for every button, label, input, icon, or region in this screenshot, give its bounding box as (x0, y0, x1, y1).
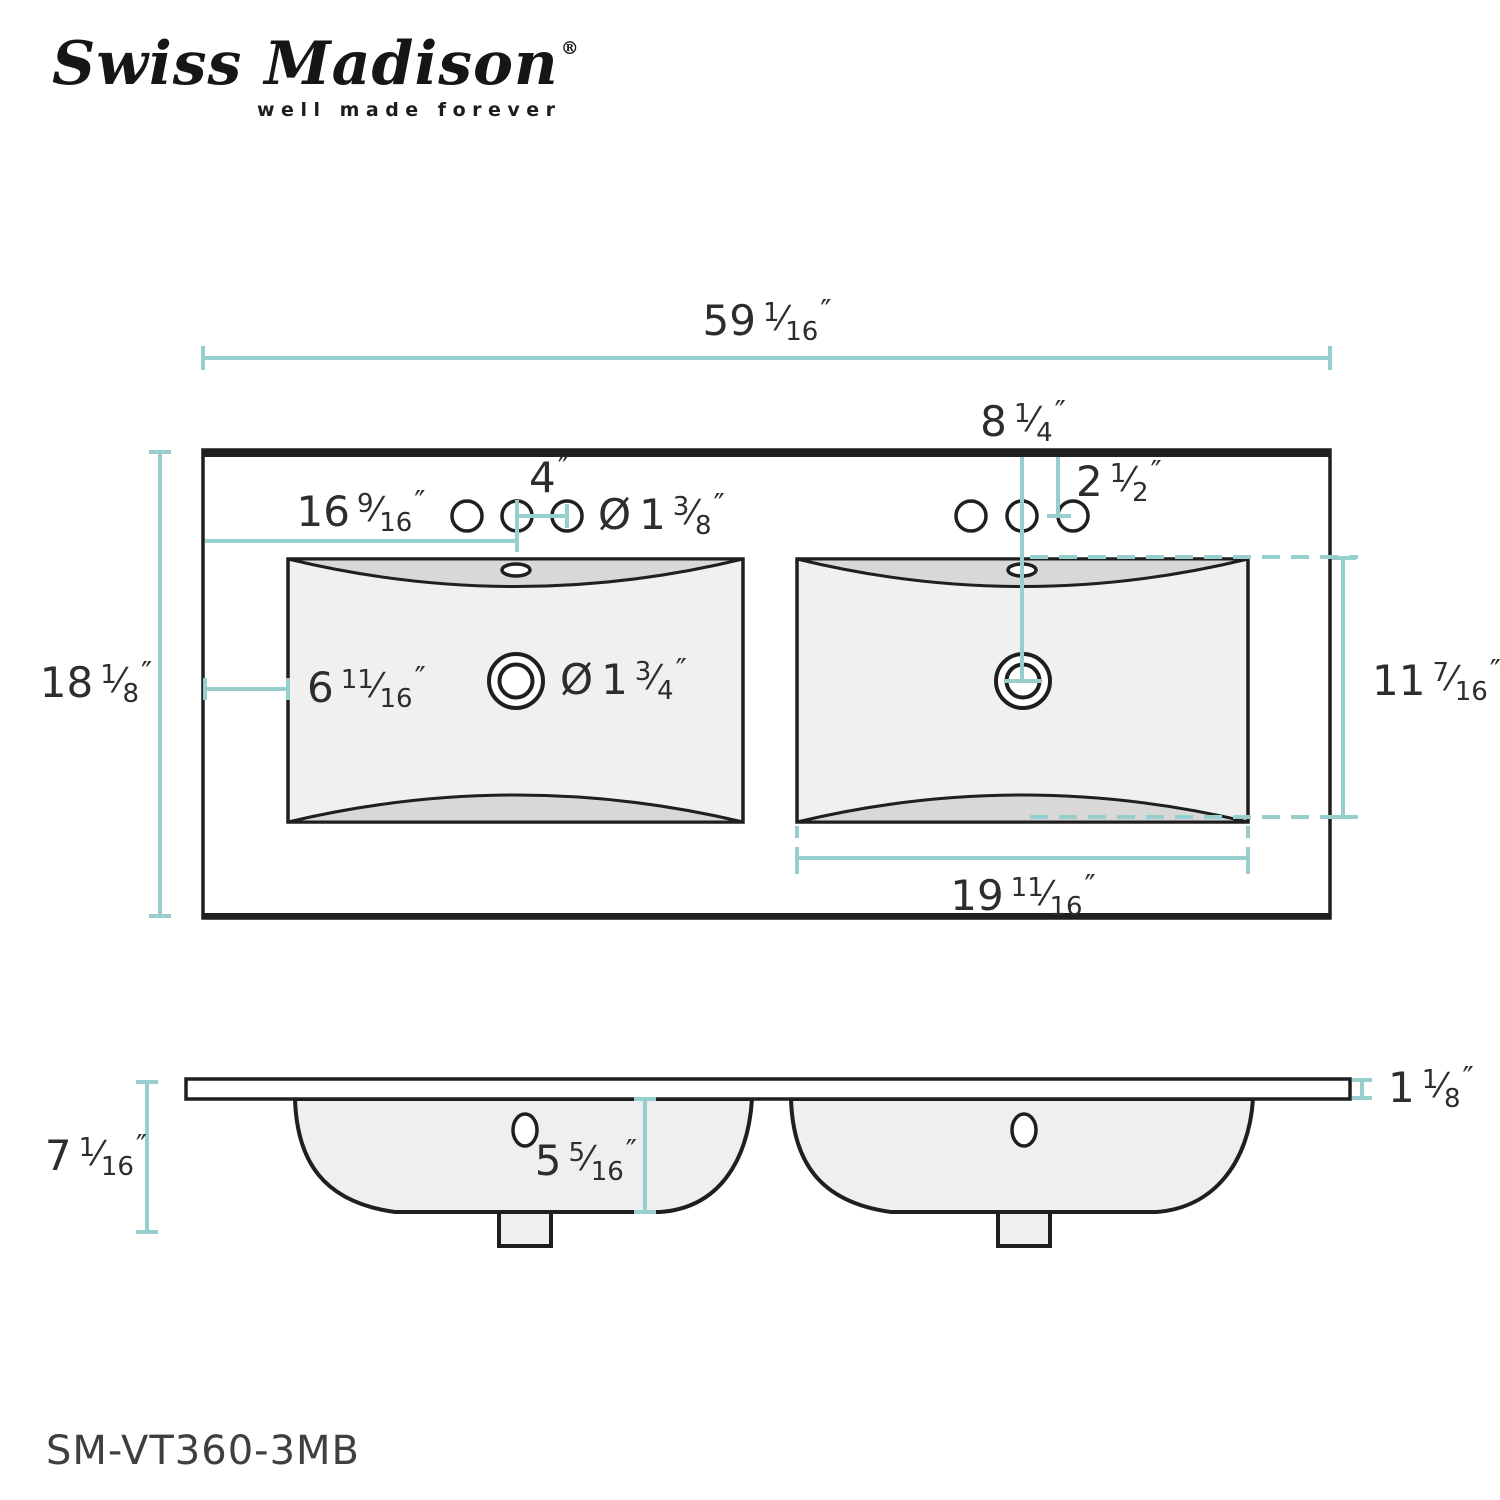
drawing-sheet: Swiss Madison® well made forever (0, 0, 1500, 1500)
dim-left-faucet-spacing-label: 4″ (518, 457, 578, 499)
dim-countertop-thickness-label: 11⁄8″ (1388, 1067, 1472, 1109)
left-overflow-hole (502, 564, 530, 576)
dim-basin-front-depth-label: 117⁄16″ (1372, 660, 1499, 702)
faucet-hole (452, 501, 482, 531)
dim-bowl-depth-label: 55⁄16″ (505, 1140, 635, 1182)
dim-left-faucet-offset-label: 169⁄16″ (285, 491, 435, 533)
dim-side-overall-height-label: 71⁄16″ (30, 1135, 160, 1177)
left-drain-stub (499, 1212, 551, 1246)
top-view (149, 346, 1358, 918)
countertop-back-edge (203, 449, 1330, 457)
side-view (136, 1079, 1372, 1246)
countertop-slab (186, 1079, 1350, 1099)
dim-overall-width-label: 591⁄16″ (660, 300, 872, 342)
technical-drawing (0, 0, 1500, 1500)
right-overflow-front (1012, 1114, 1036, 1146)
faucet-hole (956, 501, 986, 531)
dim-basin-left-offset-label: 611⁄16″ (307, 667, 424, 709)
dim-overall-depth-label: 181⁄8″ (30, 662, 160, 704)
model-number: SM-VT360-3MB (46, 1428, 360, 1474)
right-drain-stub (998, 1212, 1050, 1246)
left-drain-inner (500, 665, 533, 698)
dim-drain-diameter-label: Ø13⁄4″ (560, 659, 685, 701)
dim-right-faucet-spread-label: 81⁄4″ (957, 401, 1087, 443)
dim-right-hole-offset-label: 21⁄2″ (1076, 461, 1160, 503)
dim-basin-width-label: 1911⁄16″ (932, 875, 1112, 917)
dim-faucet-hole-diameter-label: Ø13⁄8″ (598, 494, 723, 536)
